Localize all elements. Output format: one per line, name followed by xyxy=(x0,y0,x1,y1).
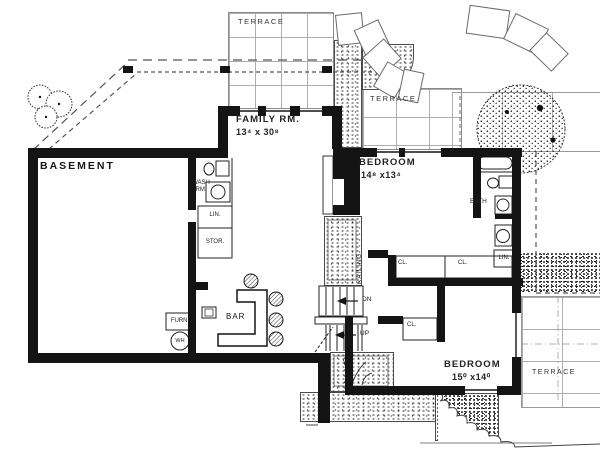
fireplace-hearth xyxy=(323,156,333,214)
wall xyxy=(28,148,38,363)
stairs xyxy=(315,286,367,352)
stairs-down-label: DN xyxy=(362,296,371,303)
wall xyxy=(497,386,521,395)
bath-label: BATH xyxy=(470,198,487,205)
family-room-dims: 13⁴ x 30⁸ xyxy=(236,127,279,137)
wall xyxy=(368,250,388,258)
wall xyxy=(441,148,522,157)
terrace-top-label: TERRACE xyxy=(238,18,284,27)
stairs-up-label: UP xyxy=(360,330,369,337)
wash-label-line1: WASH xyxy=(192,180,210,186)
wall xyxy=(378,316,403,324)
bar-stool xyxy=(269,292,283,306)
wall xyxy=(332,107,342,149)
wall xyxy=(318,353,330,423)
wall xyxy=(512,148,521,313)
wall xyxy=(28,148,228,158)
closet-c-label: CL. xyxy=(407,322,416,329)
bedroom2-dims: 15⁰ x14⁰ xyxy=(452,372,491,382)
wall xyxy=(388,278,523,286)
floor-plan-canvas: TERRACE FAMILY RM. 13⁴ x 30⁸ TERRACE BED… xyxy=(0,0,600,455)
toilet xyxy=(216,161,229,176)
terrace-bottom-label: TERRACE xyxy=(532,369,576,377)
bar-sink xyxy=(202,307,216,318)
bar-stool xyxy=(269,332,283,346)
fern-detail xyxy=(334,356,388,386)
wall xyxy=(345,148,377,157)
wall xyxy=(188,222,196,353)
furnace-label: FURN. xyxy=(166,318,194,325)
linen-left-label: LIN. xyxy=(198,212,232,219)
terrace-mid-label: TERRACE xyxy=(370,95,416,104)
wall xyxy=(399,148,405,157)
terrace-bottom-guides xyxy=(521,296,600,400)
stair-flight-up xyxy=(315,325,362,352)
linen-right-label: LIN. xyxy=(494,255,514,262)
wall xyxy=(345,316,353,395)
water-heater-label: WH xyxy=(171,338,189,344)
closet-a-label: CL. xyxy=(398,260,407,267)
bar-stool xyxy=(269,313,283,327)
wall xyxy=(28,353,330,363)
stair-landing xyxy=(315,317,367,324)
toilet xyxy=(499,176,513,188)
bath-fixtures xyxy=(475,154,515,267)
bush-northwest xyxy=(28,85,72,128)
wall xyxy=(495,214,521,219)
railing-label: RAILING xyxy=(357,226,364,284)
wash-room-label: WASH RM. xyxy=(188,180,214,194)
bedroom1-dims: 14⁸ x13⁴ xyxy=(361,170,401,180)
bar-stool xyxy=(244,274,258,288)
fireplace-opening xyxy=(333,179,344,205)
wall xyxy=(388,255,396,286)
wash-label-line2: RM. xyxy=(196,187,207,193)
closet-b-label: CL. xyxy=(458,260,467,267)
storage-label: STOR. xyxy=(198,239,232,246)
wall xyxy=(473,157,481,218)
bar-counter xyxy=(202,274,283,346)
wall xyxy=(437,284,445,342)
wall xyxy=(353,386,465,395)
bedroom2-label: BEDROOM xyxy=(444,360,501,371)
basement-label: BASEMENT xyxy=(40,160,115,172)
family-room-label: FAMILY RM. xyxy=(236,115,300,126)
bar-label: BAR xyxy=(226,312,245,321)
wall xyxy=(196,282,208,290)
planter-inner-edge xyxy=(328,220,356,280)
bedroom1-label: BEDROOM xyxy=(359,158,416,169)
